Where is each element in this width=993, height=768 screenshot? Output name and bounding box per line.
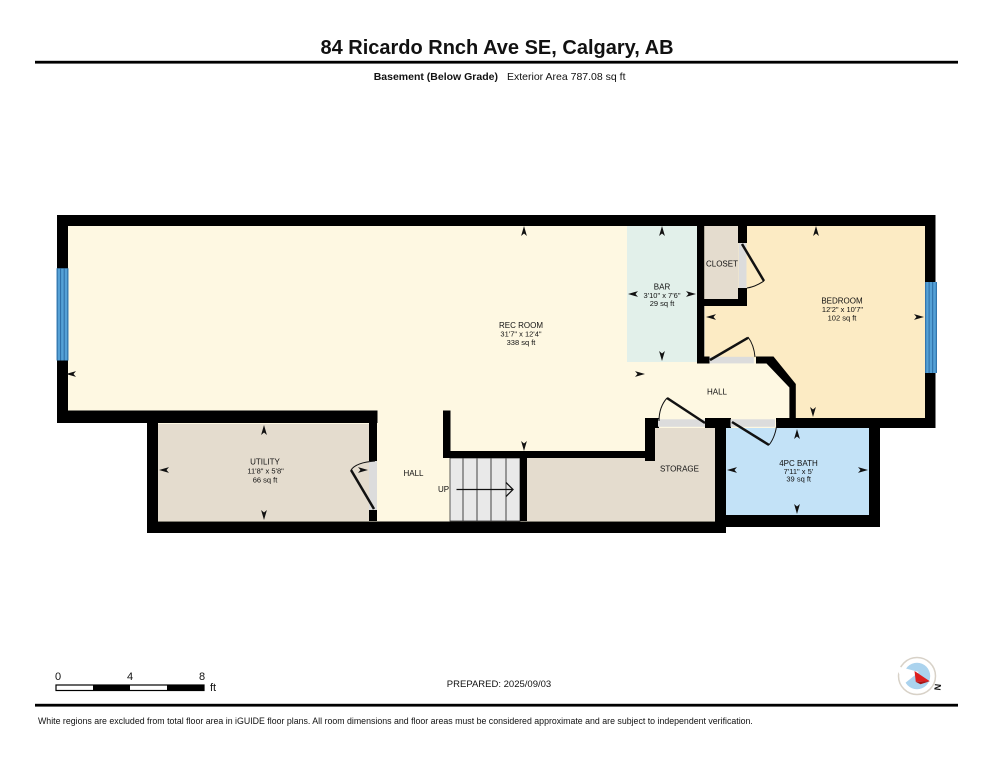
svg-text:CLOSET: CLOSET xyxy=(706,260,738,269)
svg-text:0: 0 xyxy=(55,671,61,683)
svg-text:Exterior Area 787.08 sq ft: Exterior Area 787.08 sq ft xyxy=(507,71,626,83)
svg-text:11'8" x 5'8": 11'8" x 5'8" xyxy=(247,467,284,476)
svg-text:PREPARED: 2025/09/03: PREPARED: 2025/09/03 xyxy=(447,679,551,690)
svg-text:HALL: HALL xyxy=(403,469,424,478)
svg-text:8: 8 xyxy=(199,671,205,683)
svg-text:29 sq ft: 29 sq ft xyxy=(650,299,676,308)
svg-text:Basement (Below Grade): Basement (Below Grade) xyxy=(374,71,498,83)
svg-text:84 Ricardo Rnch Ave SE, Calgar: 84 Ricardo Rnch Ave SE, Calgary, AB xyxy=(320,37,673,59)
svg-text:4: 4 xyxy=(127,671,133,683)
svg-text:N: N xyxy=(932,683,943,691)
svg-text:White regions are excluded fro: White regions are excluded from total fl… xyxy=(38,716,753,726)
svg-text:338 sq ft: 338 sq ft xyxy=(507,338,537,347)
svg-text:102 sq ft: 102 sq ft xyxy=(828,313,858,322)
svg-text:ft: ft xyxy=(210,682,216,694)
svg-text:39 sq ft: 39 sq ft xyxy=(786,474,812,483)
svg-text:66 sq ft: 66 sq ft xyxy=(253,475,279,484)
svg-text:HALL: HALL xyxy=(707,388,728,397)
svg-text:UTILITY: UTILITY xyxy=(250,458,280,467)
svg-text:UP: UP xyxy=(438,485,449,494)
svg-text:STORAGE: STORAGE xyxy=(660,465,699,474)
